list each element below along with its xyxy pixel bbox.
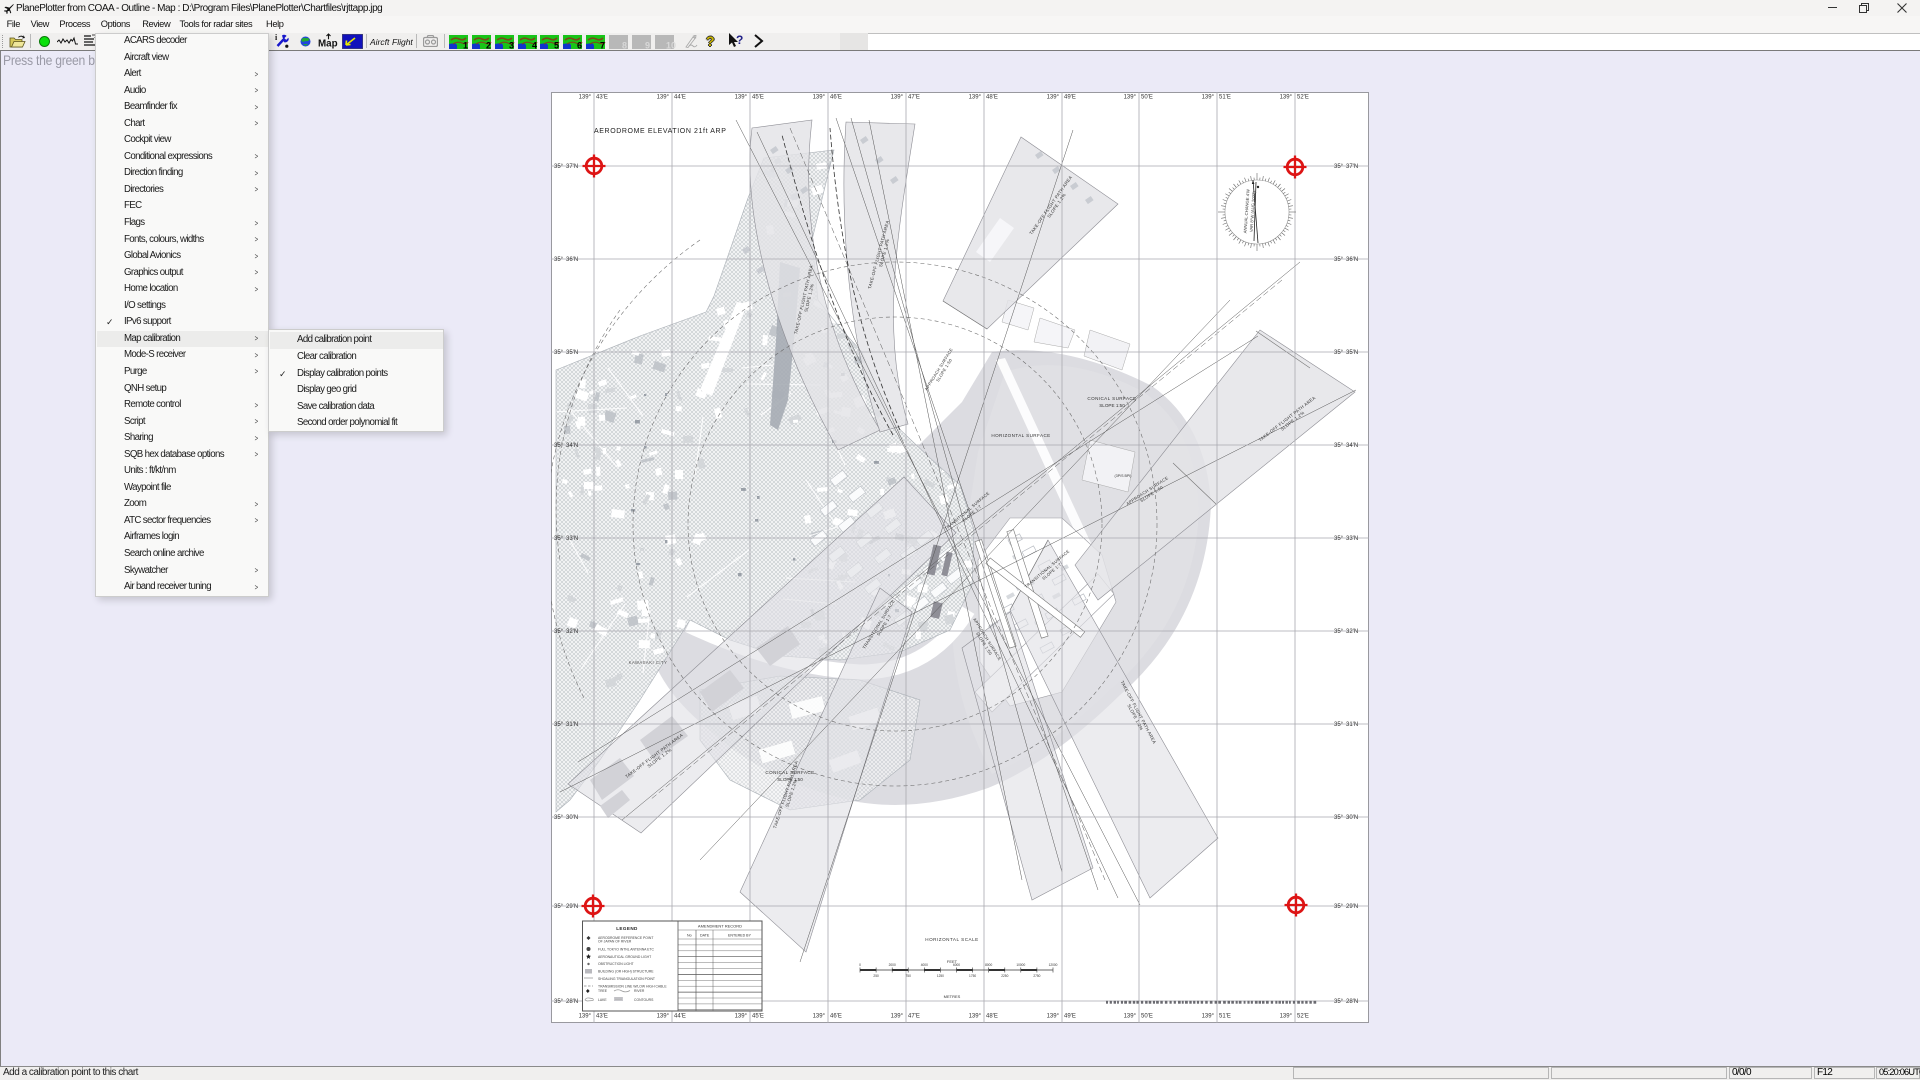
svg-text:45'E: 45'E: [752, 95, 764, 101]
svg-text:35°: 35°: [554, 999, 564, 1005]
svg-text:FULL TOKYO INTNL ANTENNA ETC: FULL TOKYO INTNL ANTENNA ETC: [598, 947, 655, 951]
svg-text:35°: 35°: [554, 536, 564, 542]
svg-text:50'E: 50'E: [1141, 95, 1153, 101]
svg-text:139°: 139°: [1202, 1014, 1215, 1020]
svg-text:1750: 1750: [969, 974, 976, 978]
svg-text:31'N: 31'N: [566, 722, 578, 728]
svg-text:4: 4: [532, 40, 537, 50]
svg-text:52'E: 52'E: [1297, 95, 1309, 101]
svg-text:51'E: 51'E: [1219, 95, 1231, 101]
svg-text:10: 10: [666, 40, 676, 50]
svg-text:6000: 6000: [953, 963, 960, 967]
svg-text:AMENDMENT RECORD: AMENDMENT RECORD: [698, 924, 742, 929]
svg-text:139°: 139°: [579, 1014, 592, 1020]
svg-text:139°: 139°: [735, 95, 748, 101]
svg-text:44'E: 44'E: [674, 95, 686, 101]
svg-text:139°: 139°: [1280, 95, 1293, 101]
svg-text:1: 1: [463, 40, 468, 50]
svg-text:10000: 10000: [1016, 963, 1025, 967]
svg-text:30'N: 30'N: [1346, 815, 1358, 821]
svg-text:9: 9: [645, 40, 650, 50]
svg-text:TREE: TREE: [598, 989, 608, 993]
svg-text:METRES: METRES: [944, 994, 961, 999]
svg-text:139°: 139°: [813, 95, 826, 101]
svg-text:46'E: 46'E: [830, 95, 842, 101]
svg-text:139°: 139°: [969, 95, 982, 101]
svg-text:45'E: 45'E: [752, 1014, 764, 1020]
svg-text:7: 7: [600, 40, 605, 50]
svg-text:139°: 139°: [1047, 95, 1060, 101]
svg-text:KAWASAKI CITY: KAWASAKI CITY: [629, 660, 668, 665]
svg-text:49'E: 49'E: [1064, 95, 1076, 101]
svg-text:47'E: 47'E: [908, 95, 920, 101]
svg-text:No: No: [687, 934, 692, 938]
svg-text:750: 750: [906, 974, 912, 978]
svg-text:35°: 35°: [1334, 350, 1344, 356]
svg-text:6: 6: [577, 40, 582, 50]
svg-text:52'E: 52'E: [1297, 1014, 1309, 1020]
svg-text:5: 5: [554, 40, 559, 50]
svg-text:48'E: 48'E: [986, 95, 998, 101]
svg-text:35°: 35°: [554, 350, 564, 356]
svg-text:50'E: 50'E: [1141, 1014, 1153, 1020]
svg-text:33'N: 33'N: [566, 536, 578, 542]
svg-text:12000: 12000: [1049, 963, 1058, 967]
svg-text:139°: 139°: [891, 95, 904, 101]
svg-text:2000: 2000: [889, 963, 896, 967]
svg-text:SHOALING TRIANGULATION PO: SHOALING TRIANGULATION POINT: [598, 977, 655, 981]
svg-text:35°: 35°: [554, 257, 564, 263]
svg-text:34'N: 34'N: [1346, 443, 1358, 449]
svg-text:Map: Map: [318, 39, 338, 50]
svg-text:28'N: 28'N: [566, 999, 578, 1005]
svg-text:37'N: 37'N: [566, 164, 578, 170]
svg-text:35°: 35°: [1334, 904, 1344, 910]
svg-text:35°: 35°: [1334, 815, 1344, 821]
svg-text:32'N: 32'N: [566, 629, 578, 635]
svg-text:8000: 8000: [985, 963, 992, 967]
svg-text:139°: 139°: [657, 1014, 670, 1020]
svg-text:4000: 4000: [921, 963, 928, 967]
svg-text:(3P/S BPI): (3P/S BPI): [1115, 474, 1132, 478]
svg-text:139°: 139°: [1047, 1014, 1060, 1020]
svg-text:AERONAUTICAL GROUND LIGHT: AERONAUTICAL GROUND LIGHT: [598, 955, 651, 959]
svg-text:35°: 35°: [1334, 443, 1344, 449]
svg-text:29'N: 29'N: [566, 904, 578, 910]
svg-text:i: i: [275, 33, 278, 42]
svg-text:LEGEND: LEGEND: [616, 926, 638, 931]
svg-text:29'N: 29'N: [1346, 904, 1358, 910]
svg-text:0: 0: [859, 963, 861, 967]
svg-text:35'N: 35'N: [1346, 350, 1358, 356]
svg-text:37'N: 37'N: [1346, 164, 1358, 170]
svg-text:36'N: 36'N: [566, 257, 578, 263]
svg-text:47'E: 47'E: [908, 1014, 920, 1020]
svg-text:139°: 139°: [969, 1014, 982, 1020]
svg-text:139°: 139°: [1202, 95, 1215, 101]
svg-text:ENTERED BY: ENTERED BY: [728, 934, 752, 938]
svg-text:3: 3: [509, 40, 514, 50]
svg-text:35°: 35°: [554, 815, 564, 821]
svg-text:139°: 139°: [657, 95, 670, 101]
svg-text:28'N: 28'N: [1346, 999, 1358, 1005]
svg-text:35°: 35°: [1334, 629, 1344, 635]
svg-text:250: 250: [873, 974, 879, 978]
svg-text:HORIZONTAL SCALE: HORIZONTAL SCALE: [925, 937, 978, 942]
svg-text:139°: 139°: [891, 1014, 904, 1020]
svg-text:SLOPE 1:50: SLOPE 1:50: [1099, 403, 1125, 408]
svg-text:43'E: 43'E: [596, 95, 608, 101]
svg-text:35°: 35°: [554, 904, 564, 910]
svg-text:35°: 35°: [1334, 164, 1344, 170]
svg-text:49'E: 49'E: [1064, 1014, 1076, 1020]
svg-text:CONTOURS: CONTOURS: [634, 998, 654, 1002]
svg-text:33'N: 33'N: [1346, 536, 1358, 542]
svg-text:HORIZONTAL SURFACE: HORIZONTAL SURFACE: [991, 433, 1050, 438]
svg-text:35°: 35°: [554, 164, 564, 170]
svg-text:2250: 2250: [1001, 974, 1008, 978]
svg-text:35°: 35°: [554, 443, 564, 449]
svg-text:31'N: 31'N: [1346, 722, 1358, 728]
svg-text:35°: 35°: [554, 629, 564, 635]
svg-text:35°: 35°: [554, 722, 564, 728]
svg-text:OF JAPAN OF RIVER: OF JAPAN OF RIVER: [598, 940, 632, 944]
svg-text:139°: 139°: [579, 95, 592, 101]
svg-text:44'E: 44'E: [674, 1014, 686, 1020]
svg-text:139°: 139°: [813, 1014, 826, 1020]
svg-text:35°: 35°: [1334, 536, 1344, 542]
svg-text:48'E: 48'E: [986, 1014, 998, 1020]
svg-text:139°: 139°: [1124, 1014, 1137, 1020]
svg-text:51'E: 51'E: [1219, 1014, 1231, 1020]
svg-text:OBSTRUCTION LIGHT: OBSTRUCTION LIGHT: [598, 962, 634, 966]
svg-text:CONICAL SURFACE: CONICAL SURFACE: [1087, 396, 1136, 401]
svg-text:32'N: 32'N: [1346, 629, 1358, 635]
svg-text:2750: 2750: [1033, 974, 1040, 978]
svg-text:35°: 35°: [1334, 257, 1344, 263]
svg-text:139°: 139°: [735, 1014, 748, 1020]
svg-text:DATE: DATE: [700, 934, 710, 938]
svg-text:46'E: 46'E: [830, 1014, 842, 1020]
svg-text:TRANSMISSION LINE W/LOW HIGH C: TRANSMISSION LINE W/LOW HIGH CABLE: [598, 984, 667, 988]
svg-text:AERODROME ELEVATION 21ft ARP: AERODROME ELEVATION 21ft ARP: [594, 128, 726, 135]
svg-text:35°: 35°: [1334, 999, 1344, 1005]
svg-text:36'N: 36'N: [1346, 257, 1358, 263]
svg-text:2: 2: [486, 40, 491, 50]
svg-text:8: 8: [622, 40, 627, 50]
svg-text:139°: 139°: [1124, 95, 1137, 101]
svg-text:30'N: 30'N: [566, 815, 578, 821]
svg-text:35°: 35°: [1334, 722, 1344, 728]
svg-text:LAKE: LAKE: [598, 998, 607, 1002]
svg-text:35'N: 35'N: [566, 350, 578, 356]
svg-text:43'E: 43'E: [596, 1014, 608, 1020]
svg-text:BUILDING (OR HIGH) STRUCTURE: BUILDING (OR HIGH) STRUCTURE: [598, 970, 654, 974]
svg-text:?: ?: [736, 33, 743, 47]
svg-text:1250: 1250: [937, 974, 944, 978]
svg-text:34'N: 34'N: [566, 443, 578, 449]
svg-text:139°: 139°: [1280, 1014, 1293, 1020]
svg-text:RIVER: RIVER: [634, 989, 645, 993]
